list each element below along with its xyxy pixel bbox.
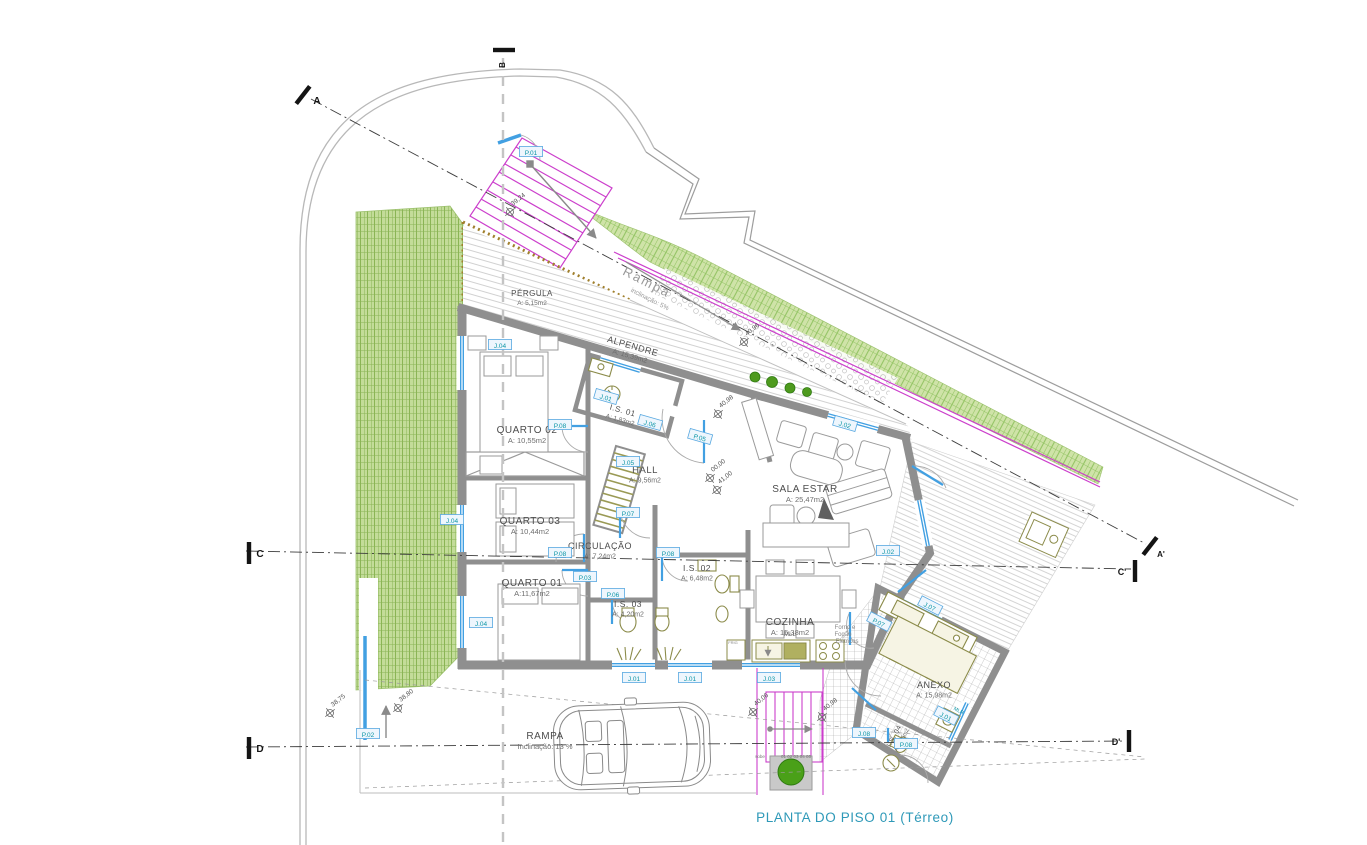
annotation-el-tricos: Elétricos: [835, 639, 858, 645]
rampa-driveway: [360, 670, 1145, 793]
annotation-frig: FRIG: [728, 640, 738, 645]
svg-text:D': D': [1112, 737, 1121, 747]
dim-41-00: 41,00: [707, 470, 738, 499]
tag-j04: J.04: [488, 340, 511, 351]
svg-text:P.01: P.01: [525, 150, 538, 157]
svg-text:J.08: J.08: [858, 731, 871, 738]
dim-40-98: 40,98: [708, 394, 739, 423]
svg-text:Elétricos: Elétricos: [835, 639, 858, 645]
dim-38-80: 38,80: [388, 688, 419, 717]
tag-p06: P.06: [601, 589, 624, 600]
svg-text:A': A': [1157, 550, 1165, 559]
svg-text:P.07: P.07: [622, 511, 635, 518]
svg-text:P.08: P.08: [900, 742, 913, 749]
sobe-arrow: [768, 727, 812, 731]
svg-text:P.02: P.02: [362, 732, 375, 739]
svg-text:I.S. 03: I.S. 03: [614, 599, 642, 609]
svg-text:P.08: P.08: [554, 423, 567, 430]
svg-text:FRIG: FRIG: [728, 640, 738, 645]
svg-text:A: 7,24m2: A: 7,24m2: [584, 554, 616, 561]
annotation-forno-e: Forno e: [835, 625, 856, 631]
section-marker-c-prime: C': [1118, 560, 1138, 582]
section-marker-d: D: [247, 737, 264, 759]
svg-text:A: 15,98m2: A: 15,98m2: [916, 693, 952, 700]
tag-j08: J.08: [852, 728, 875, 739]
room-label-i-s-02: I.S. 02A: 6,48m2: [681, 563, 713, 583]
svg-text:J.02: J.02: [882, 549, 895, 556]
svg-text:ANEXO: ANEXO: [917, 680, 951, 690]
tag-p05: P.05: [687, 429, 712, 445]
tag-p07: P.07: [616, 508, 639, 519]
svg-text:A: 6,48m2: A: 6,48m2: [681, 576, 713, 583]
svg-text:A:11,67m2: A:11,67m2: [514, 589, 550, 598]
svg-text:PÉRGULA: PÉRGULA: [511, 289, 553, 298]
svg-text:B: B: [498, 62, 507, 68]
svg-text:J.01: J.01: [628, 676, 641, 683]
tag-p08: P.08: [656, 548, 679, 559]
svg-text:A: 25,47m2: A: 25,47m2: [786, 495, 824, 504]
dim-40-06: 40,06: [743, 692, 774, 721]
gate-path: [359, 578, 378, 690]
car: [552, 695, 711, 796]
tag-p01: P.01: [519, 147, 542, 158]
kitchen-counter: [727, 640, 844, 662]
drawing-title: PLANTA DO PISO 01 (Térreo): [756, 810, 954, 825]
tag-j04: J.04: [440, 515, 463, 526]
tag-j01: J.01: [678, 673, 701, 684]
svg-text:COZINHA: COZINHA: [766, 617, 815, 628]
svg-text:J.04: J.04: [475, 621, 488, 628]
svg-text:Inclinação: 13 %: Inclinação: 13 %: [517, 742, 572, 751]
annotation-sobe: sobe: [755, 754, 765, 759]
tag-p08: P.08: [894, 739, 917, 750]
section-marker-c: C: [247, 542, 264, 564]
svg-text:SALA ESTAR: SALA ESTAR: [772, 484, 837, 495]
svg-text:C': C': [1118, 567, 1127, 577]
svg-text:01 02 03 04 05: 01 02 03 04 05: [781, 754, 812, 759]
svg-text:Fogão: Fogão: [834, 632, 852, 638]
floor-plan-svg: PÉRGULAA: 5,15m2ALPENDREA: 15,39m2QUARTO…: [0, 0, 1367, 845]
room-label-i-s-01: I.S. 01A: 1,83m2: [605, 402, 639, 428]
svg-text:D: D: [256, 744, 263, 755]
svg-text:I.S. 02: I.S. 02: [683, 563, 711, 573]
svg-text:Forno e: Forno e: [835, 625, 856, 631]
svg-text:A: 4,20m2: A: 4,20m2: [612, 612, 644, 619]
svg-text:38,75: 38,75: [330, 693, 347, 709]
tag-j03: J.03: [757, 673, 780, 684]
section-marker-b: B: [493, 48, 515, 68]
floor-plan-canvas: PÉRGULAA: 5,15m2ALPENDREA: 15,39m2QUARTO…: [0, 0, 1367, 845]
tag-p08: P.08: [548, 420, 571, 431]
svg-text:MLL: MLL: [784, 632, 796, 638]
svg-text:P.08: P.08: [662, 551, 675, 558]
svg-text:40,06: 40,06: [753, 692, 770, 708]
svg-text:J.05: J.05: [622, 460, 635, 467]
svg-text:J.03: J.03: [763, 676, 776, 683]
tag-j05: J.05: [616, 457, 639, 468]
svg-text:RAMPA: RAMPA: [526, 731, 563, 742]
svg-text:P.03: P.03: [579, 575, 592, 582]
svg-text:J.04: J.04: [494, 343, 507, 350]
section-marker-a: A: [294, 85, 320, 107]
svg-text:P.06: P.06: [607, 592, 620, 599]
annotation-01-02-03-04-05: 01 02 03 04 05: [781, 754, 812, 759]
svg-text:J.01: J.01: [684, 676, 697, 683]
svg-text:A: 10,44m2: A: 10,44m2: [511, 527, 549, 536]
room-label-sala-estar: SALA ESTARA: 25,47m2: [772, 484, 837, 504]
svg-text:sobe: sobe: [755, 754, 765, 759]
tag-j02: J.02: [876, 546, 899, 557]
annotation-mll: MLL: [784, 632, 796, 638]
room-label-hall: HALLA: 9,56m2: [629, 465, 661, 485]
svg-text:C: C: [256, 549, 263, 560]
room-label-anexo: ANEXOA: 15,98m2: [916, 680, 952, 700]
svg-text:38,80: 38,80: [398, 688, 415, 704]
svg-text:A: 10,55m2: A: 10,55m2: [508, 436, 546, 445]
svg-text:QUARTO 01: QUARTO 01: [502, 578, 563, 589]
svg-text:A: A: [313, 96, 320, 107]
dim-38-75: 38,75: [320, 693, 351, 722]
room-label-i-s-03: I.S. 03A: 4,20m2: [612, 599, 644, 619]
tag-j04: J.04: [469, 618, 492, 629]
tag-p08: P.08: [548, 548, 571, 559]
svg-text:CIRCULAÇÃO: CIRCULAÇÃO: [568, 541, 632, 551]
svg-text:40,98: 40,98: [718, 394, 735, 410]
tag-p03: P.03: [573, 572, 596, 583]
svg-text:41,00: 41,00: [717, 470, 734, 486]
annotation-fog-o: Fogão: [834, 632, 852, 638]
svg-text:A: 9,56m2: A: 9,56m2: [629, 478, 661, 485]
tag-p02: P.02: [356, 729, 379, 740]
svg-text:P.08: P.08: [554, 551, 567, 558]
svg-text:QUARTO 03: QUARTO 03: [500, 516, 561, 527]
section-marker-a-prime: A': [1141, 536, 1164, 559]
tag-j01: J.01: [622, 673, 645, 684]
svg-text:J.04: J.04: [446, 518, 459, 525]
svg-text:A: 5,15m2: A: 5,15m2: [517, 300, 547, 307]
svg-text:00,00: 00,00: [710, 458, 727, 474]
